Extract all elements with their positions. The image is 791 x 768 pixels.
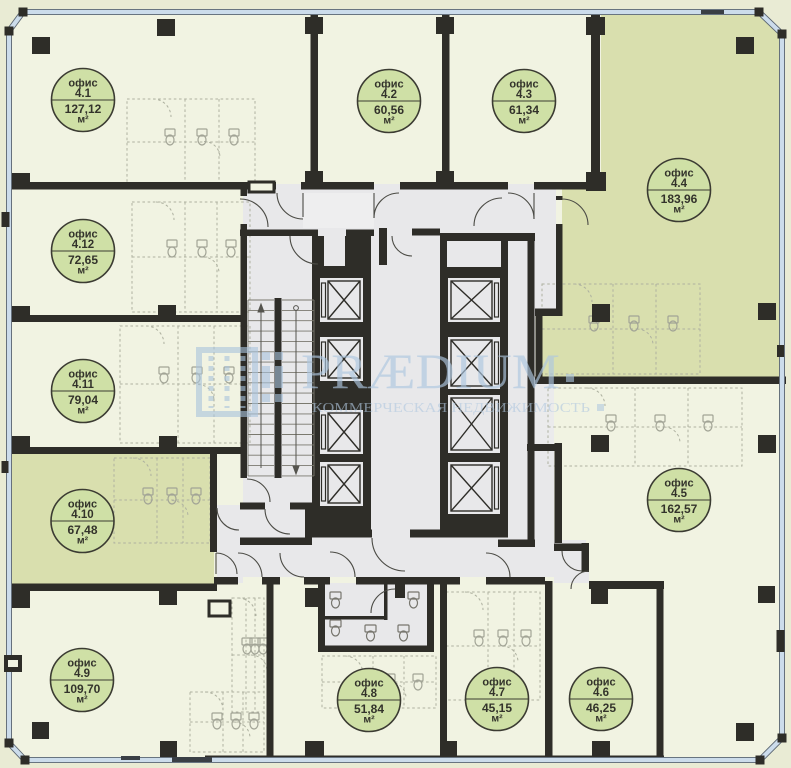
svg-text:КОММЕРЧЕСКАЯ НЕДВИЖИМОСТЬ: КОММЕРЧЕСКАЯ НЕДВИЖИМОСТЬ — [312, 400, 590, 415]
svg-text:PRÆDIUM: PRÆDIUM — [301, 343, 560, 399]
svg-text:м²: м² — [76, 694, 88, 706]
svg-text:4.10: 4.10 — [71, 509, 93, 521]
svg-text:4.5: 4.5 — [671, 488, 688, 500]
svg-text:4.7: 4.7 — [489, 687, 505, 699]
svg-text:4.2: 4.2 — [381, 89, 397, 101]
svg-text:4.3: 4.3 — [516, 89, 532, 101]
svg-text:м²: м² — [77, 535, 89, 547]
svg-text:м²: м² — [673, 514, 685, 526]
svg-text:м²: м² — [673, 204, 685, 216]
svg-text:м²: м² — [77, 265, 89, 277]
svg-text:4.11: 4.11 — [72, 379, 94, 391]
svg-text:4.9: 4.9 — [74, 668, 90, 680]
svg-text:м²: м² — [77, 405, 89, 417]
svg-text:4.6: 4.6 — [593, 687, 609, 699]
svg-text:м²: м² — [491, 713, 503, 725]
svg-text:4.12: 4.12 — [72, 239, 94, 251]
svg-text:м²: м² — [77, 114, 89, 126]
svg-text:м²: м² — [363, 714, 375, 726]
svg-text:м²: м² — [383, 115, 395, 127]
svg-text:4.8: 4.8 — [361, 688, 378, 700]
svg-text:м²: м² — [595, 713, 607, 725]
svg-text:4.4: 4.4 — [671, 178, 688, 190]
svg-text:м²: м² — [518, 115, 530, 127]
svg-text:4.1: 4.1 — [75, 88, 92, 100]
